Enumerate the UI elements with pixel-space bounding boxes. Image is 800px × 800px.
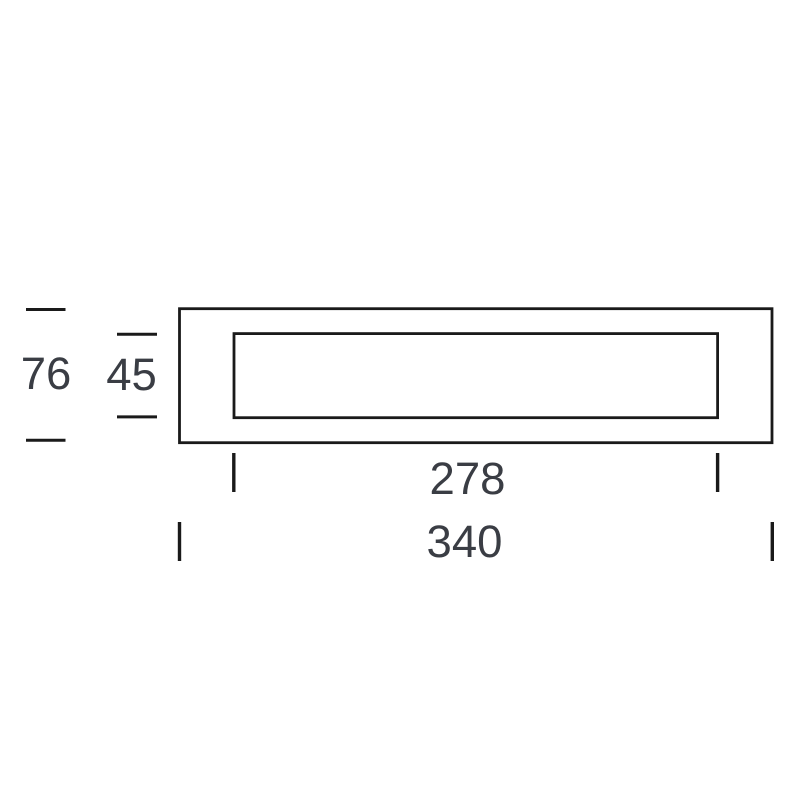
svg-text:340: 340 <box>427 516 503 567</box>
svg-text:45: 45 <box>106 349 157 400</box>
svg-text:76: 76 <box>21 348 72 399</box>
svg-text:278: 278 <box>430 453 506 504</box>
